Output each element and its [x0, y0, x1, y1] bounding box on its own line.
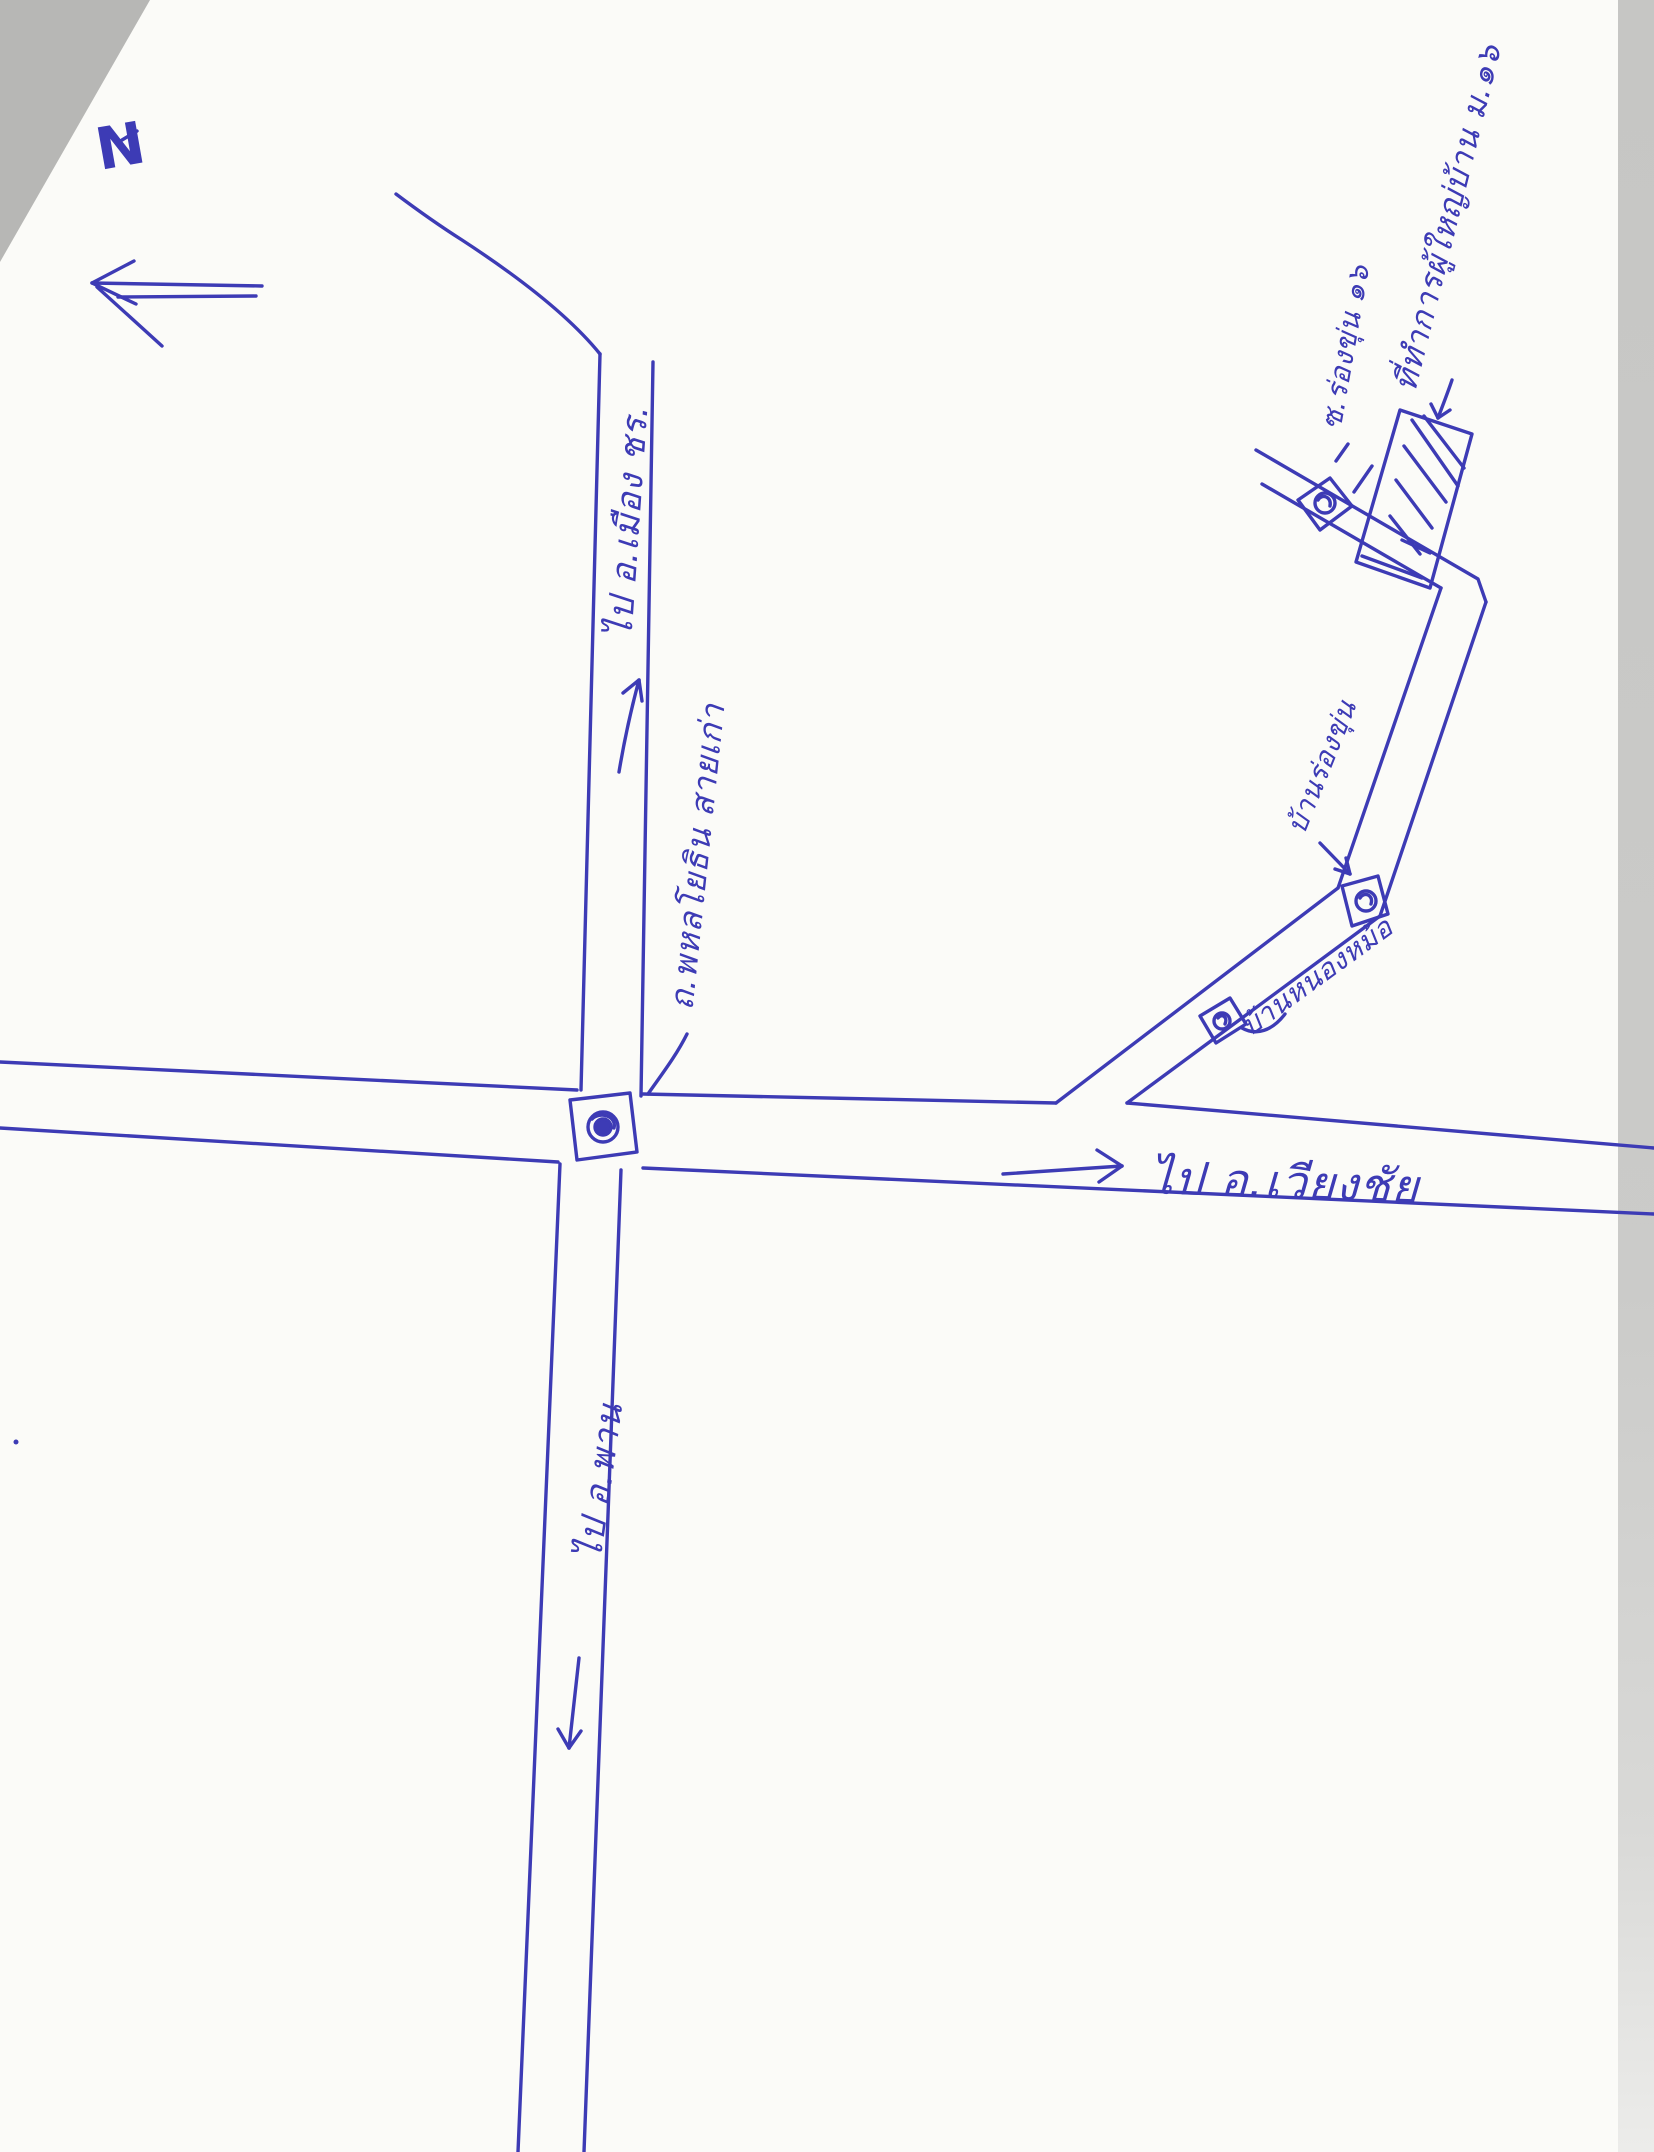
- up-arrow-icon: [619, 680, 642, 772]
- traffic-light-central: [570, 1093, 637, 1160]
- destination-arrow-icon: [1431, 380, 1452, 418]
- label-to-wiang-chai: ไป อ.เวียงชัย: [1149, 1141, 1421, 1223]
- destination-building: [1356, 410, 1472, 588]
- soi-leader-tick: [1354, 466, 1372, 492]
- road-continuation-squiggle: [396, 194, 600, 354]
- down-arrow-icon: [558, 1658, 581, 1748]
- rong-khun-arrow-icon: [1320, 843, 1350, 874]
- right-arrow-icon: [1003, 1150, 1122, 1182]
- road-main-south: [518, 1164, 621, 2152]
- ink-speck: [14, 1440, 19, 1445]
- map-sheet: N ไป อ.เมือง ชร. ถ.พหลโยธิน สายเก่า ไป อ…: [0, 0, 1654, 2152]
